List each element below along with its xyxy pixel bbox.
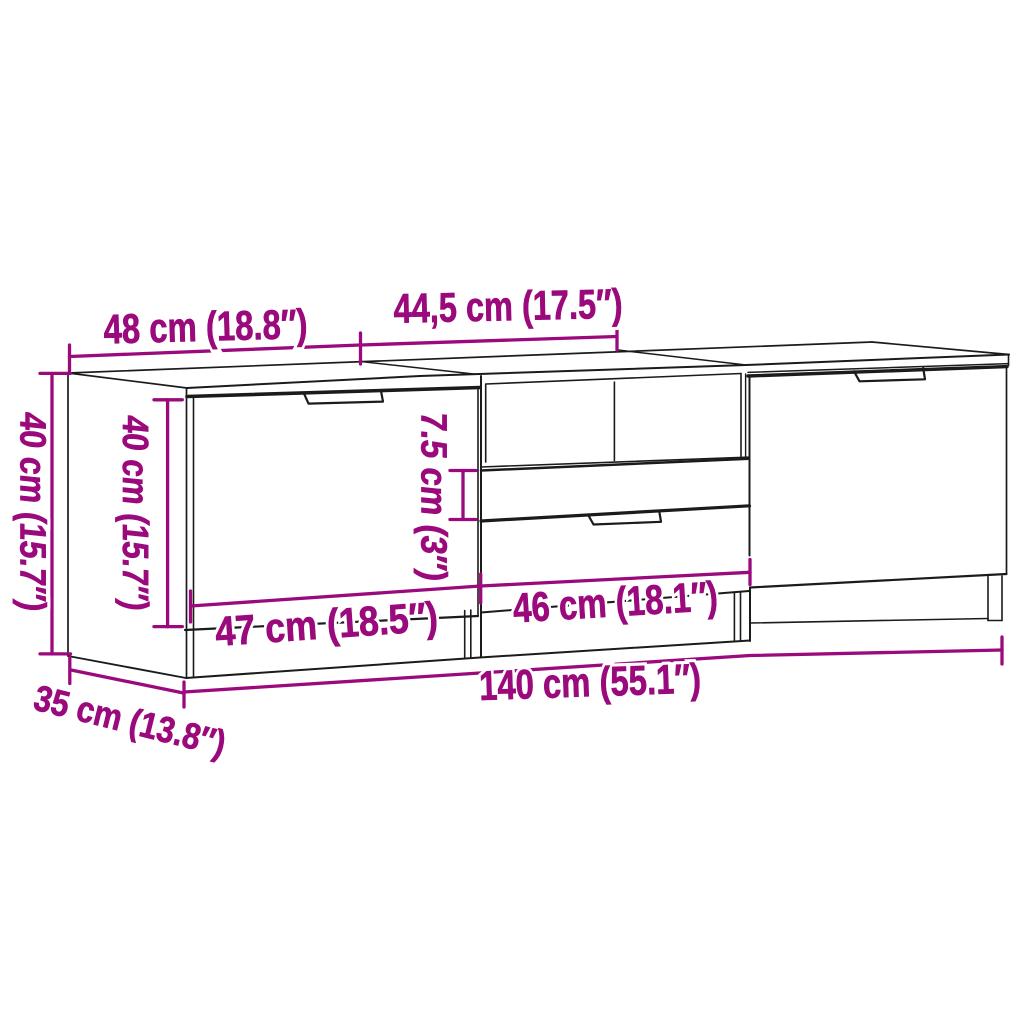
- svg-text:48 cm (18.8″): 48 cm (18.8″): [103, 300, 308, 353]
- svg-text:7.5 cm (3″): 7.5 cm (3″): [414, 410, 455, 583]
- svg-text:40 cm (15.7″): 40 cm (15.7″): [13, 410, 54, 613]
- svg-text:40 cm (15.7″): 40 cm (15.7″): [115, 414, 156, 613]
- svg-text:44,5 cm (17.5″): 44,5 cm (17.5″): [393, 280, 623, 332]
- svg-text:140 cm (55.1″): 140 cm (55.1″): [478, 654, 702, 709]
